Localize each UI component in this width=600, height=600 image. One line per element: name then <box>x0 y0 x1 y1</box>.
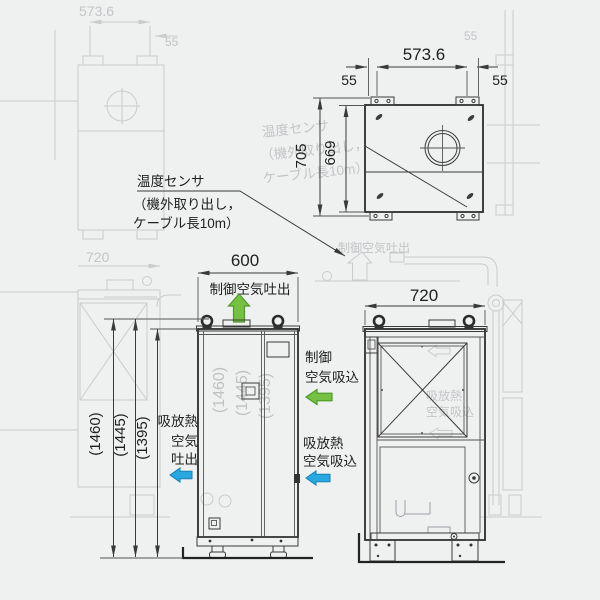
ghost-height-1460: (1460) <box>211 367 228 413</box>
sensor-note-line2: （機外取り出し， <box>133 197 241 212</box>
side-view: 720 <box>359 286 505 562</box>
control-air-out-label: 制御空気吐出 <box>210 282 291 297</box>
sensor-note-line1: 温度センサ <box>137 174 205 189</box>
side-width-label: 720 <box>410 286 438 305</box>
ghost-left-arrow-icon <box>428 346 450 357</box>
top-width-label: 573.6 <box>403 45 446 64</box>
dim-55-left: 55 <box>341 58 368 96</box>
ghost-sensor-line2: （機外取り出し， <box>260 137 369 163</box>
ghost-up-arrow-icon <box>348 252 372 280</box>
control-air-in-line1: 制御 <box>305 350 332 365</box>
heat-air-in-arrow-icon <box>306 471 330 485</box>
heat-air-out-label: 吸放熱 空気 吐出 <box>158 414 199 482</box>
heat-air-out-line1: 吸放熱 <box>158 414 199 429</box>
ghost-foot-offset-right-label: 55 <box>464 29 478 43</box>
depth-inner-label: 669 <box>322 140 339 165</box>
ghost-foot-offset-label: 55 <box>165 35 179 49</box>
heat-air-in-line2: 空気吸込 <box>303 454 357 469</box>
front-cabinet-outline <box>198 329 298 537</box>
side-base <box>371 533 479 540</box>
ghost-sensor-line3: ケーブル長10m） <box>262 159 370 186</box>
control-air-in-arrow-icon <box>306 390 332 405</box>
front-label-plate <box>209 518 220 529</box>
ghost-side-view: 720 <box>0 249 170 517</box>
dim-573: 573.6 <box>377 45 467 96</box>
side-lower-panel <box>380 447 465 533</box>
side-feet <box>370 540 478 561</box>
dim-55-right: 55 <box>477 58 508 96</box>
ghost-texts: 温度センサ （機外取り出し， ケーブル長10m） <box>257 114 371 186</box>
front-feet <box>210 546 287 558</box>
depth-overall-label: 705 <box>293 143 310 168</box>
height-1460-label: (1460) <box>87 412 104 455</box>
front-width-label: 600 <box>231 251 259 270</box>
front-ground-line <box>183 547 313 558</box>
front-vent-window <box>267 342 289 357</box>
equipment-dimension-drawing: 573.6 55 720 制御空気吐出 <box>0 0 600 600</box>
ghost-heat-in-line1: 吸放熱 <box>426 388 462 403</box>
front-base <box>197 537 298 546</box>
ghost-top-width-label: 573.6 <box>79 3 114 19</box>
heat-air-out-line3: 吐出 <box>171 452 198 467</box>
side-duct-stub <box>429 320 455 327</box>
heat-air-in-line1: 吸放熱 <box>303 436 344 451</box>
heat-air-out-arrow-icon <box>170 468 192 482</box>
control-air-in-line2: 空気吸込 <box>305 370 359 385</box>
front-panel-seams <box>198 331 298 537</box>
corner-mount-icons <box>375 113 476 200</box>
heat-air-in-label: 吸放熱 空気吸込 <box>303 436 357 485</box>
top-view-outline <box>365 105 483 212</box>
foot-offset-right-label: 55 <box>492 72 508 88</box>
height-1445-label: (1445) <box>112 413 129 456</box>
control-air-out-arrow-icon <box>229 294 250 322</box>
side-knob <box>469 473 479 483</box>
side-eyebolts <box>374 316 474 330</box>
height-1395-label: (1395) <box>134 416 151 459</box>
control-air-in-label: 制御 空気吸込 <box>305 350 359 405</box>
sensor-hole <box>420 125 465 171</box>
drawing-svg: 573.6 55 720 制御空気吐出 <box>0 0 600 600</box>
side-ground-line <box>359 533 505 562</box>
sensor-note: 温度センサ （機外取り出し， ケーブル長10m） <box>133 174 345 256</box>
heat-air-out-line2: 空気 <box>171 434 198 449</box>
ghost-height-1395: (1395) <box>257 373 274 419</box>
front-right-edge-tab <box>294 474 300 483</box>
ghost-side-width-label: 720 <box>86 249 110 265</box>
sensor-note-line3: ケーブル長10m） <box>133 215 239 231</box>
foot-offset-left-label: 55 <box>341 72 357 88</box>
